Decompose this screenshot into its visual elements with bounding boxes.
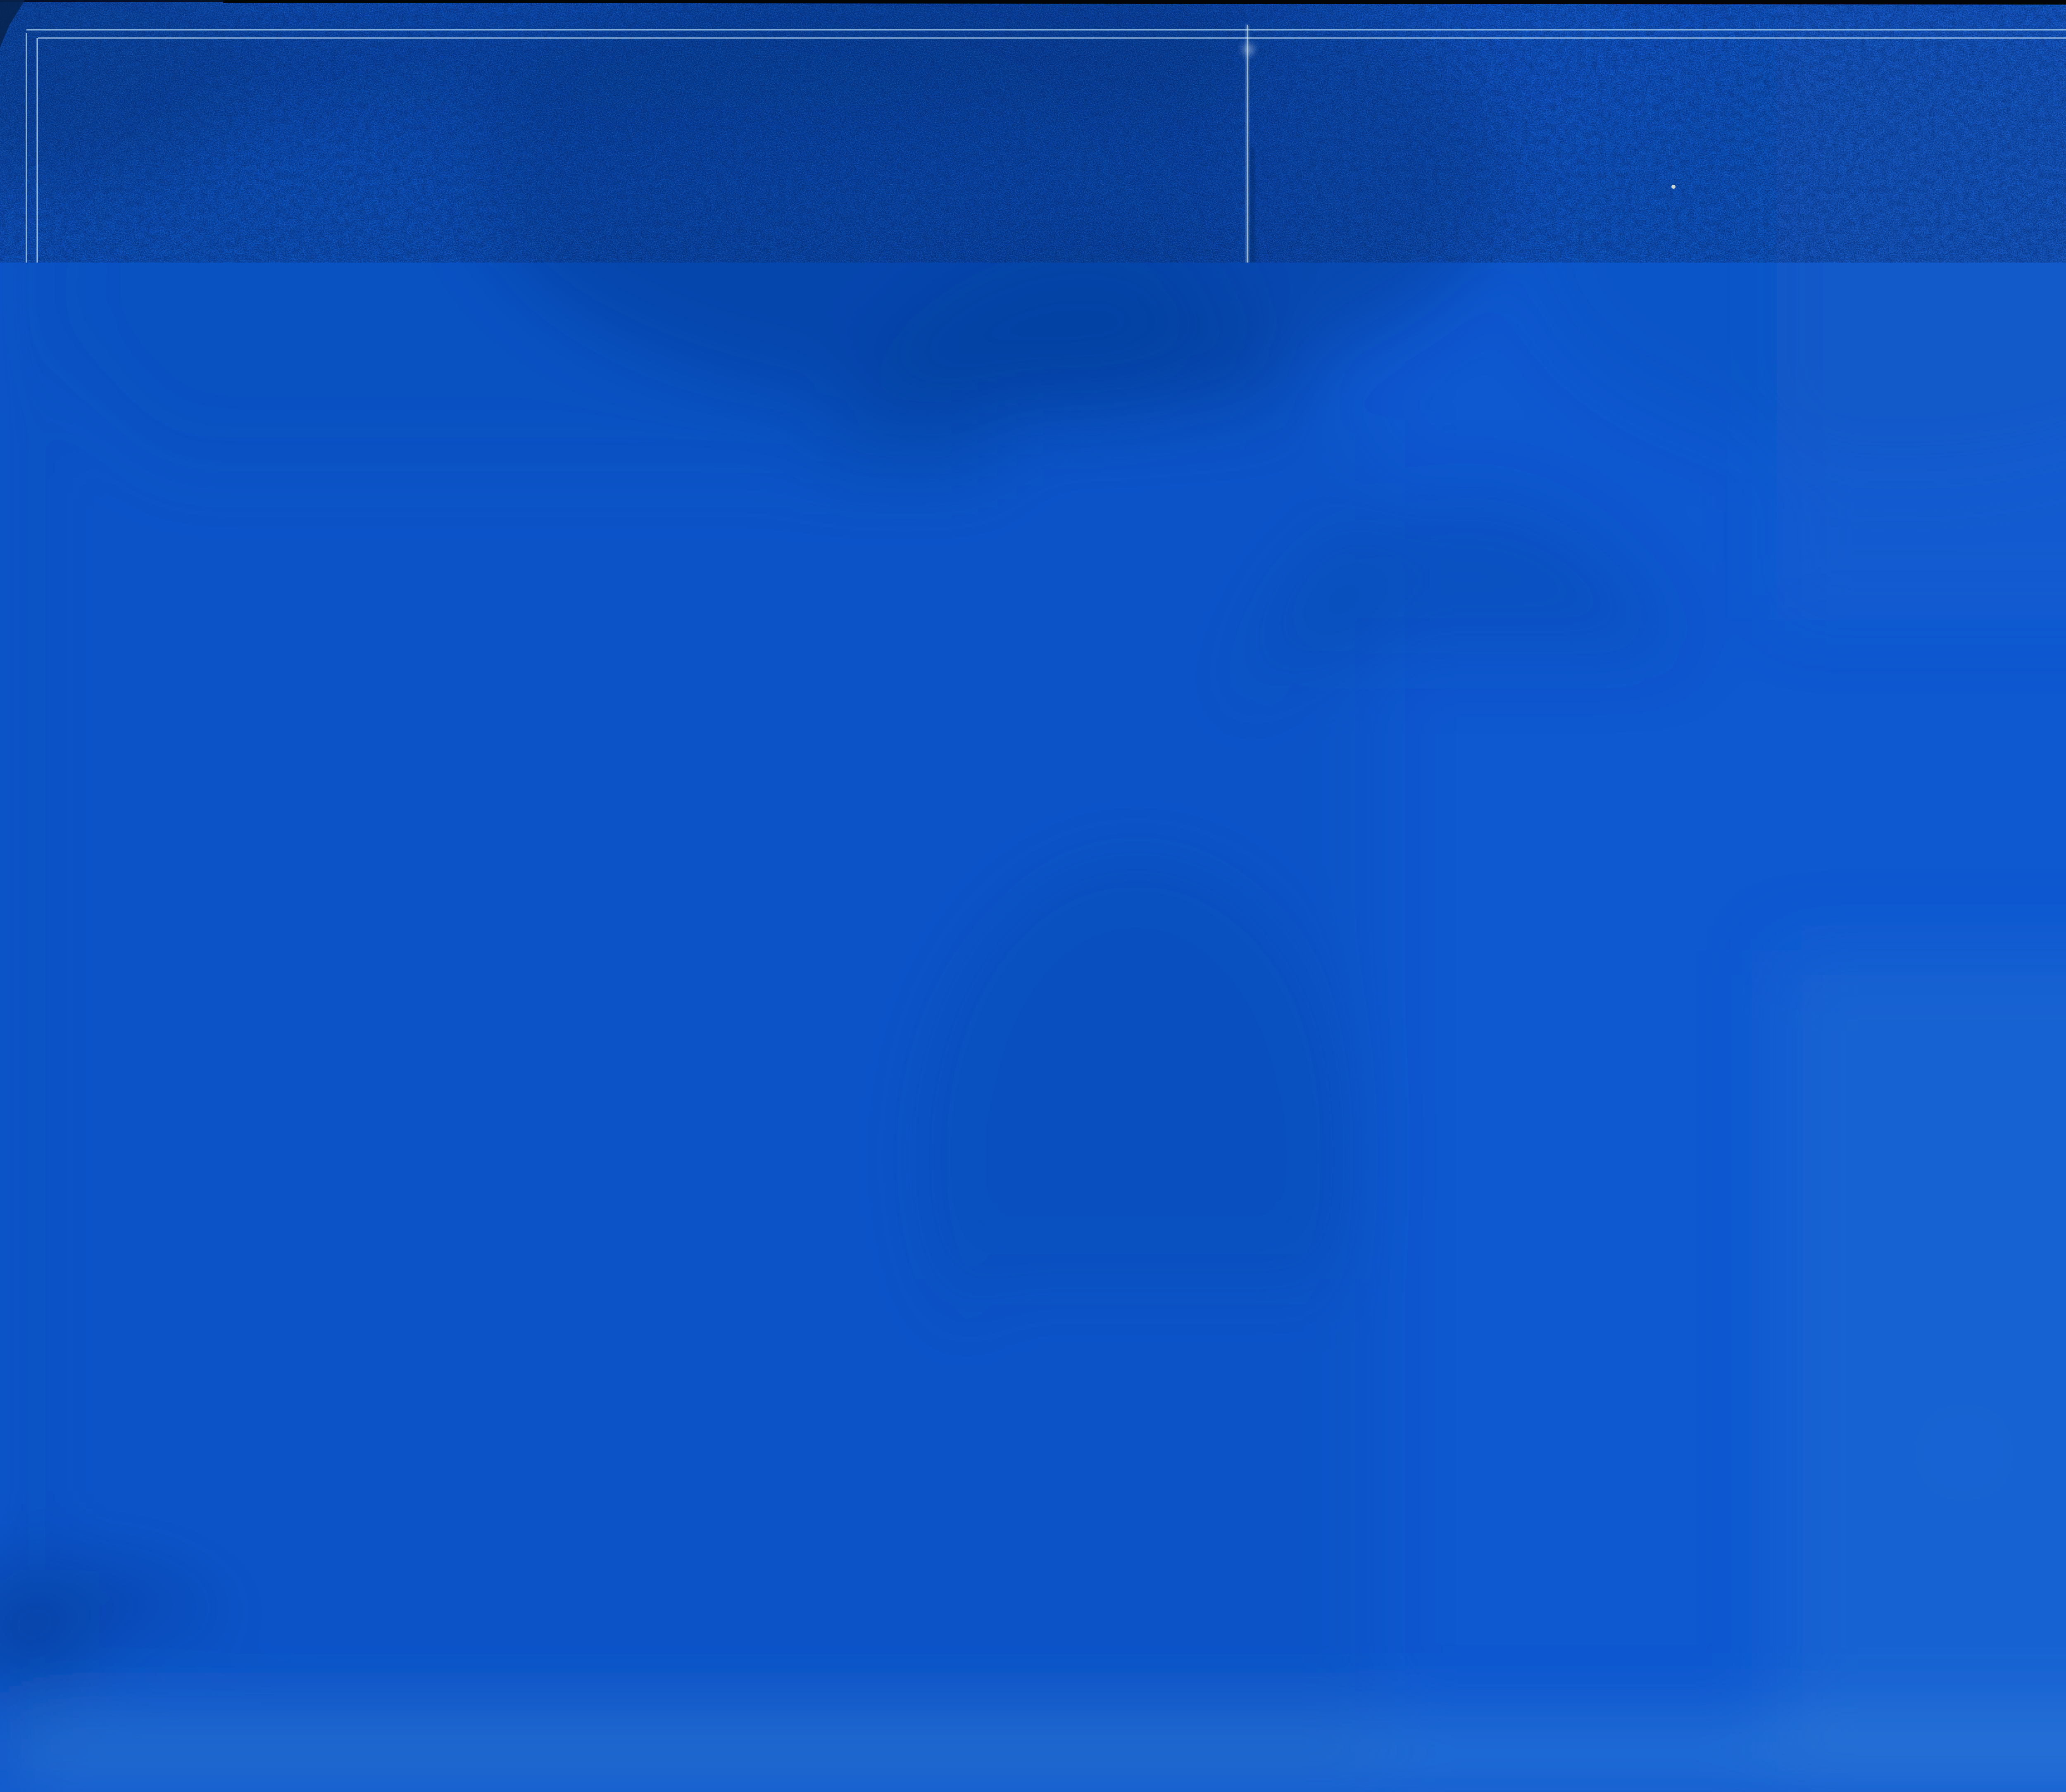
svg-text:10: 10: [446, 455, 470, 479]
svg-text:80: 80: [650, 532, 671, 552]
svg-text:1: 1: [1864, 1593, 1873, 1611]
svg-text:M10821: M10821: [1890, 1541, 1935, 1555]
svg-text:5aK/4: 5aK/4: [2045, 1706, 2066, 1737]
svg-text:x: x: [540, 471, 547, 484]
svg-text:6: 6: [2017, 1540, 2026, 1557]
svg-text:40: 40: [1827, 1190, 1852, 1215]
svg-text:1: 1: [1942, 1593, 1951, 1611]
svg-text:″: ″: [1890, 1578, 1895, 1591]
svg-text:M10821: M10821: [1890, 1596, 1935, 1609]
svg-text:125: 125: [602, 327, 634, 348]
svg-text:2: 2: [843, 1121, 869, 1173]
svg-text:6: 6: [1864, 1502, 1874, 1521]
svg-text:26: 26: [836, 434, 860, 459]
svg-text:opracováno dle x: opracováno dle x: [1598, 1538, 1731, 1557]
svg-text:Patky statoru: Patky statoru: [2030, 1576, 2066, 1593]
svg-text:Čís.: Čís.: [1861, 1615, 1886, 1630]
svg-text:M10830: M10830: [1890, 1505, 1935, 1518]
svg-text:12: 12: [1586, 1552, 1606, 1573]
svg-text:30: 30: [828, 1051, 850, 1072]
svg-text:11: 11: [1361, 1699, 1384, 1722]
svg-text:1: 1: [2017, 1594, 2026, 1611]
svg-text:B: B: [2024, 1686, 2039, 1709]
svg-text:30°: 30°: [1593, 1578, 1614, 1594]
svg-text:detail.: detail.: [1887, 1624, 1925, 1640]
svg-text:5: 5: [1864, 1521, 1874, 1539]
svg-text:STATOR: STATOR: [1904, 1702, 2016, 1732]
svg-text:248: 248: [671, 1577, 703, 1599]
svg-text:40: 40: [1320, 1192, 1345, 1217]
svg-text:označ.: označ.: [1933, 1611, 1962, 1622]
svg-text:Kontroloval:: Kontroloval:: [1862, 1657, 1940, 1674]
svg-text:0·75: 0·75: [774, 407, 789, 435]
svg-text:62·5: 62·5: [540, 351, 577, 371]
svg-text:2: 2: [1864, 1575, 1873, 1593]
svg-text:215: 215: [1543, 1259, 1578, 1285]
svg-text:5: 5: [1942, 1521, 1952, 1539]
svg-text:6·5: 6·5: [639, 370, 664, 390]
svg-text:30: 30: [490, 375, 512, 397]
svg-text:Matek 6SJ: Matek 6SJ: [2030, 1540, 2066, 1557]
svg-text:x: x: [448, 427, 455, 441]
svg-text:1: 1: [2017, 1503, 2026, 1521]
svg-text:5: 5: [948, 1430, 974, 1481]
svg-text:Kreslil:: Kreslil:: [1862, 1638, 1907, 1655]
svg-text:4: 4: [1864, 1539, 1873, 1557]
svg-text:6: 6: [1575, 1669, 1585, 1689]
svg-text:svařeno: svařeno: [1631, 1164, 1693, 1184]
svg-text:Svorková skříň.: Svorková skříň.: [2030, 1503, 2066, 1521]
svg-text:18: 18: [338, 1519, 361, 1542]
svg-text:výkr.: výkr.: [1933, 1623, 1960, 1638]
svg-text:3: 3: [911, 393, 935, 441]
svg-text:18: 18: [1001, 1517, 1024, 1540]
svg-text:2: 2: [2017, 1576, 2026, 1593]
svg-text:3: 3: [857, 912, 881, 960]
svg-text:0·75: 0·75: [774, 474, 789, 502]
svg-text:6: 6: [2060, 796, 2066, 852]
svg-text:M10821: M10821: [1890, 1523, 1935, 1537]
svg-text:3: 3: [1942, 1557, 1951, 1575]
svg-text:SOUČÁST —POZNÁMKA.: SOUČÁST —POZNÁMKA.: [2040, 1614, 2066, 1633]
svg-text:175: 175: [612, 1199, 644, 1221]
svg-text:4: 4: [1942, 1539, 1951, 1557]
svg-text:15: 15: [1583, 1694, 1605, 1716]
svg-text:Přednosta:: Přednosta:: [1862, 1675, 1934, 1692]
svg-text:105: 105: [639, 465, 669, 485]
svg-text:4: 4: [1481, 1509, 1509, 1564]
svg-text:IV. III. II. I.: IV. III. II. I.: [1964, 1608, 2013, 1621]
svg-text:Original.: Original.: [65, 1714, 155, 1744]
svg-text:2: 2: [1942, 1575, 1951, 1593]
svg-text:Šrouby 6SJ: Šrouby 6SJ: [2030, 1521, 2066, 1539]
svg-text:8: 8: [1261, 913, 1271, 933]
svg-text:x: x: [438, 412, 445, 425]
svg-text:135: 135: [1541, 1178, 1577, 1205]
svg-text:Číslo: Číslo: [1887, 1610, 1919, 1625]
svg-text:3: 3: [1864, 1557, 1873, 1575]
svg-text:2: 2: [2017, 1558, 2026, 1575]
svg-text:9: 9: [1607, 1668, 1616, 1688]
svg-text:30: 30: [848, 374, 869, 396]
svg-text:3: 3: [2017, 1521, 2026, 1539]
svg-text:20: 20: [549, 461, 569, 482]
svg-text:Počet kusů: Počet kusů: [1964, 1621, 2009, 1631]
svg-text:Válec statoru z vlnitého plech: Válec statoru z vlnitého plechu.: [2030, 1594, 2066, 1611]
svg-text:M10821: M10821: [1890, 1559, 1935, 1573]
svg-text:62·5: 62·5: [761, 349, 798, 369]
svg-text:Stahovací pasy 30x755x8: Stahovací pasy 30x755x8: [2030, 1558, 2066, 1575]
svg-text:25: 25: [1223, 1143, 1244, 1164]
svg-text:2: 2: [1909, 1108, 1934, 1159]
svg-text:175: 175: [1542, 1224, 1578, 1251]
svg-text:2: 2: [1404, 1112, 1430, 1163]
svg-text:220: 220: [618, 1254, 650, 1276]
